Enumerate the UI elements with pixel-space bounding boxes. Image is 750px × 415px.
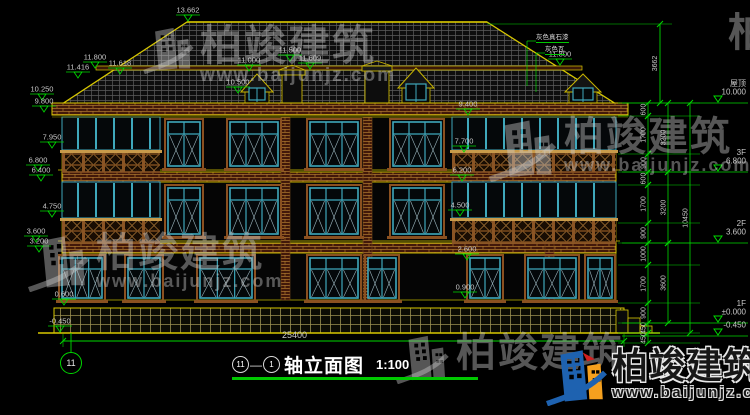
watermark-url: www.baijunjz.com <box>564 156 750 176</box>
dimension-label: -0.450 <box>49 317 70 326</box>
material-callout-tile: 灰色瓦 <box>545 43 565 55</box>
level-triangle-icon <box>74 72 82 78</box>
dimension-label: 600 <box>641 104 648 116</box>
drawing-scale: 1:100 <box>376 357 409 372</box>
dimension-label: 11.800 <box>84 53 106 62</box>
dimension-label: 0.900 <box>456 283 475 292</box>
dimension-label: 6.400 <box>32 166 51 175</box>
dimension-label: 11.618 <box>109 59 131 68</box>
dimension-label: 10450 <box>683 208 690 228</box>
dimension-label: 3200 <box>661 200 668 216</box>
level-triangle-icon <box>37 175 45 181</box>
watermark-left: 柏竣建筑 www.baijunjz.com <box>26 234 283 292</box>
level-triangle-icon <box>714 236 722 242</box>
dimension-label: 1000 <box>641 246 648 262</box>
dimension-label: 2.600 <box>458 245 477 254</box>
level-triangle-icon <box>714 329 722 335</box>
dimension-label: 3600 <box>661 275 668 291</box>
dimension-label: 9.400 <box>459 100 478 109</box>
dimension-label: 450 <box>641 332 648 344</box>
title-axis-end-bubble: 1 <box>263 356 280 373</box>
title-underline <box>232 377 478 380</box>
brand-mark-color: 柏竣建筑 www.baijunjz.com <box>544 348 750 406</box>
brand-logo-icon <box>26 234 90 292</box>
dimension-label: 900 <box>641 307 648 319</box>
dimension-label: ±0.000 <box>722 308 747 317</box>
watermark-right: 柏竣建筑 www.baijunjz.com <box>486 118 750 182</box>
dimension-label: 10.000 <box>722 88 747 97</box>
watermark-top-right-partial: 柏竣建筑 <box>728 12 750 58</box>
dimension-label: 900 <box>641 227 648 239</box>
level-triangle-icon <box>40 106 48 112</box>
watermark-brand: 柏竣建筑 <box>728 12 750 52</box>
dimension-label: 3662 <box>652 56 659 72</box>
dimension-label: 13.662 <box>177 6 200 15</box>
dimension-label: 4.500 <box>451 201 470 210</box>
level-triangle-icon <box>714 316 722 322</box>
watermark-url: www.baijunjz.com <box>96 272 283 292</box>
dimension-label: -0.450 <box>723 321 746 330</box>
title-axis-separator: — <box>250 358 262 372</box>
dimension-label: 6.200 <box>453 166 472 175</box>
material-callout-stone-paint: 灰色真石漆 <box>536 31 569 43</box>
brand-logo-color-icon <box>544 348 608 406</box>
brand-url: www.baijunjz.com <box>612 384 750 402</box>
cad-elevation-canvas: 13.66211.80011.41611.61810.2509.80011.00… <box>0 0 750 415</box>
dimension-label: 7.700 <box>455 137 474 146</box>
dimension-label: 11.416 <box>67 63 89 72</box>
dimension-label: 7.950 <box>43 133 62 142</box>
level-triangle-icon <box>184 15 192 21</box>
watermark-brand: 柏竣建筑 <box>96 234 283 272</box>
brand-name: 柏竣建筑 <box>612 348 750 384</box>
overall-width-dimension: 25400 <box>282 330 307 340</box>
brand-logo-icon <box>142 26 194 74</box>
axis-bubble-11: 11 <box>60 352 82 374</box>
drawing-title-block: 11 — 1 轴立面图 1:100 <box>232 351 409 378</box>
watermark-url: www.baijunjz.com <box>200 66 396 87</box>
dimension-label: 3.600 <box>726 228 747 237</box>
level-triangle-icon <box>48 142 56 148</box>
watermark-top: 柏竣建筑 www.baijunjz.com <box>142 26 396 87</box>
dimension-label: 1700 <box>641 196 648 212</box>
dimension-label: 1700 <box>641 276 648 292</box>
dimension-label: 9.800 <box>35 97 54 106</box>
dimension-label: 6.800 <box>29 156 48 165</box>
drawing-title-text: 轴立面图 <box>284 351 364 378</box>
title-axis-start-bubble: 11 <box>232 356 249 373</box>
watermark-brand: 柏竣建筑 <box>564 118 750 156</box>
dimension-label: 450 <box>641 322 648 334</box>
level-triangle-icon <box>48 211 56 217</box>
watermark-brand: 柏竣建筑 <box>200 26 396 66</box>
dimension-label: 4.750 <box>43 202 62 211</box>
dimension-label: 10.250 <box>31 85 54 94</box>
level-triangle-icon <box>714 96 722 102</box>
level-triangle-icon <box>556 59 564 65</box>
brand-logo-icon <box>486 118 558 182</box>
